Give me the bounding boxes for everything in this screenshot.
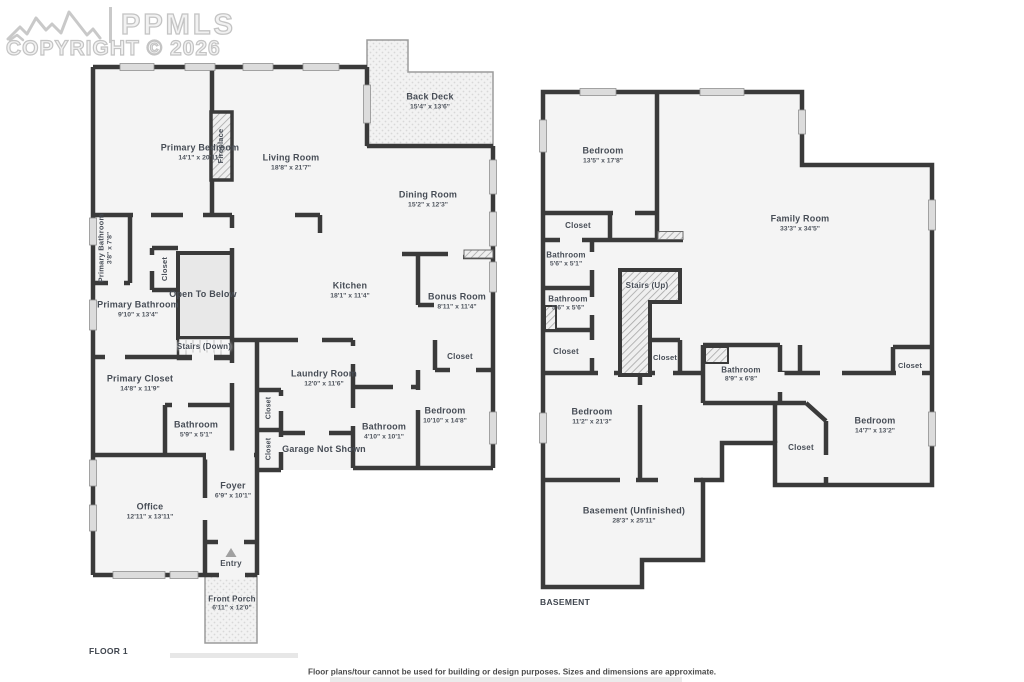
disclaimer-text: Floor plans/tour cannot be used for buil… xyxy=(308,668,716,677)
kitchen-pass-through xyxy=(464,250,493,258)
shower-bathroom-c xyxy=(705,347,728,363)
back-deck-area xyxy=(367,40,493,146)
watermark-copyright: COPYRIGHT © 2026 xyxy=(6,37,236,61)
front-porch-area xyxy=(205,575,257,643)
watermark: PPMLS COPYRIGHT © 2026 xyxy=(6,6,236,61)
fireplace-area xyxy=(211,112,232,180)
floorplan-canvas xyxy=(0,0,1024,682)
basement-title: BASEMENT xyxy=(540,597,590,607)
family-room-sill xyxy=(658,232,683,240)
bottom-edge-strip xyxy=(330,677,682,682)
basement-plan xyxy=(540,89,936,588)
floorplan-page: PPMLS COPYRIGHT © 2026 Primary Bedroom14… xyxy=(0,0,1024,682)
floor1-plan xyxy=(90,40,497,658)
open-to-below-area xyxy=(178,253,232,338)
shower-bathroom-b xyxy=(545,306,556,330)
floor1-title: FLOOR 1 xyxy=(89,646,128,656)
walkway-strip xyxy=(170,653,298,658)
